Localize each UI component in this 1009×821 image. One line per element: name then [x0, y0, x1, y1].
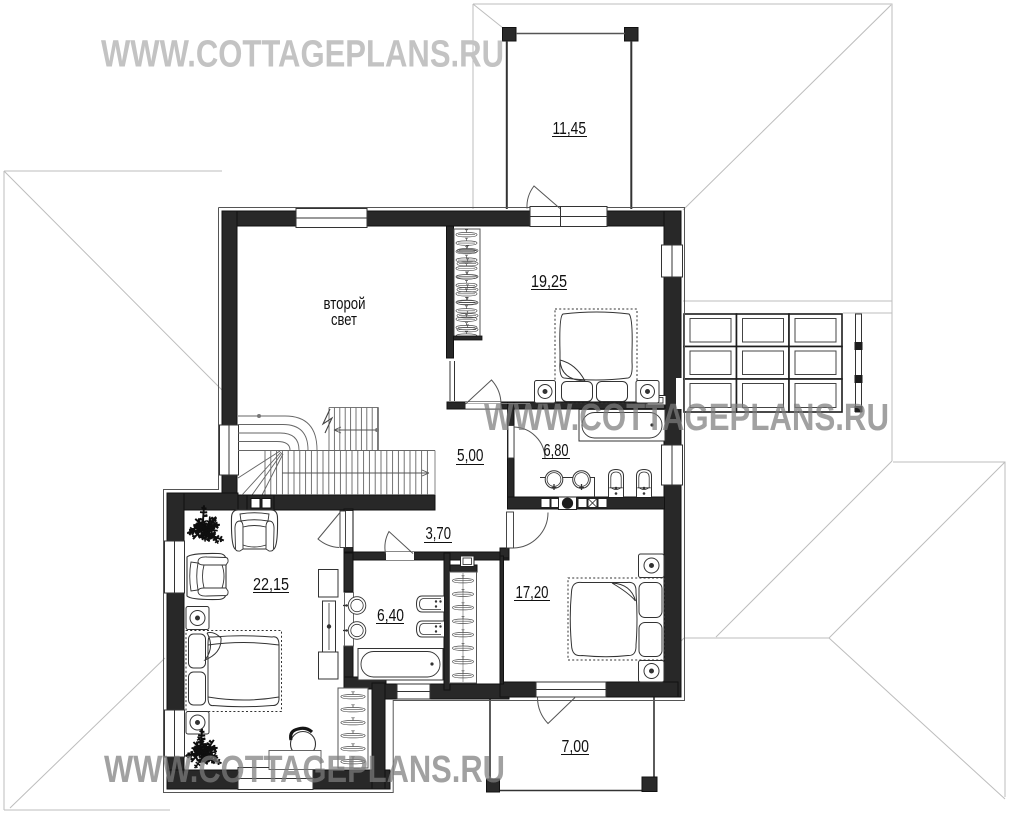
- svg-text:6,40: 6,40: [377, 605, 404, 625]
- svg-text:WWW.COTTAGEPLANS.RU: WWW.COTTAGEPLANS.RU: [101, 34, 504, 76]
- svg-text:11,45: 11,45: [553, 118, 587, 138]
- svg-text:22,15: 22,15: [253, 574, 289, 594]
- svg-text:3,70: 3,70: [426, 523, 452, 543]
- svg-text:5,00: 5,00: [457, 445, 484, 465]
- svg-text:7,00: 7,00: [562, 736, 590, 756]
- svg-text:19,25: 19,25: [531, 271, 567, 291]
- svg-text:17,20: 17,20: [516, 582, 549, 602]
- svg-text:свет: свет: [331, 311, 357, 329]
- svg-text:WWW.COTTAGEPLANS.RU: WWW.COTTAGEPLANS.RU: [104, 749, 505, 791]
- svg-text:WWW.COTTAGEPLANS.RU: WWW.COTTAGEPLANS.RU: [484, 397, 889, 439]
- svg-text:6,80: 6,80: [544, 440, 569, 460]
